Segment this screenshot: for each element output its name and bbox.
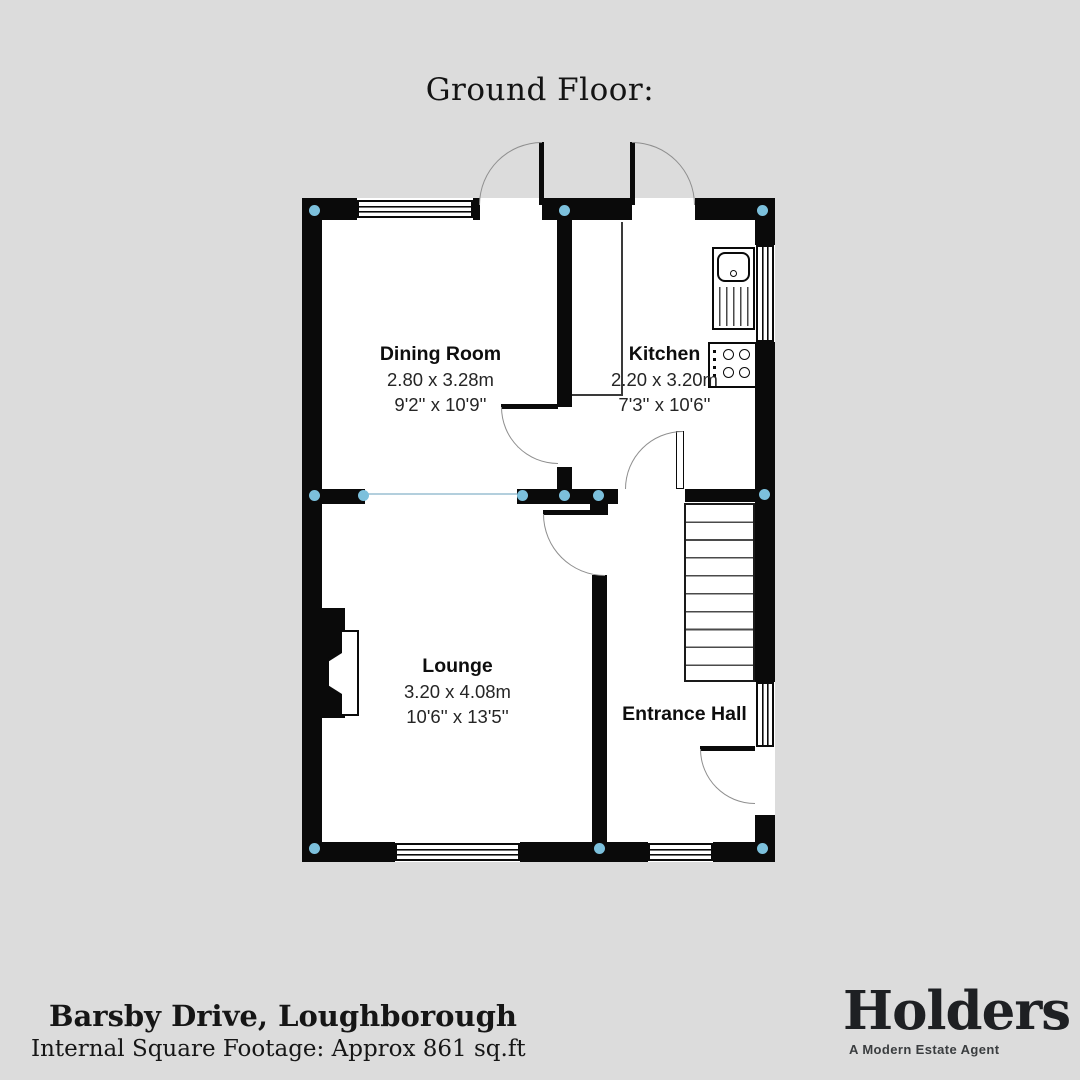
room-name: Kitchen bbox=[562, 341, 767, 367]
window bbox=[648, 843, 713, 861]
junction-dot bbox=[358, 490, 369, 501]
junction-dot bbox=[559, 205, 570, 216]
window bbox=[357, 200, 473, 218]
room-name: Entrance Hall bbox=[582, 701, 787, 727]
junction-dot bbox=[309, 205, 320, 216]
staircase bbox=[684, 503, 755, 682]
room-dim-imperial: 9'2'' x 10'9'' bbox=[338, 392, 543, 417]
room-dim-imperial: 10'6'' x 13'5'' bbox=[355, 704, 560, 729]
door-swing-arc bbox=[543, 514, 605, 576]
room-label-entrance-hall: Entrance Hall bbox=[582, 701, 787, 727]
junction-dot bbox=[757, 205, 768, 216]
junction-dot bbox=[309, 490, 320, 501]
door-swing-arc bbox=[632, 142, 695, 205]
door-swing-arc bbox=[625, 431, 683, 489]
sink-drain bbox=[730, 270, 737, 277]
wall-segment bbox=[302, 198, 322, 862]
door-swing-arc bbox=[700, 749, 755, 804]
room-label-lounge: Lounge 3.20 x 4.08m 10'6'' x 13'5'' bbox=[355, 653, 560, 729]
agency-logo: Holders A Modern Estate Agent bbox=[843, 983, 1070, 1057]
square-footage: Internal Square Footage: Approx 861 sq.f… bbox=[31, 1034, 526, 1064]
junction-dot bbox=[757, 843, 768, 854]
floor-plan: Dining Room 2.80 x 3.28m 9'2'' x 10'9'' … bbox=[302, 198, 775, 862]
junction-dot bbox=[594, 843, 605, 854]
junction-dot bbox=[559, 490, 570, 501]
floorplan-page: Ground Floor: bbox=[0, 0, 1080, 1080]
room-dim-metric: 2.20 x 3.20m bbox=[562, 367, 767, 392]
sink-bowl bbox=[717, 252, 750, 282]
property-address: Barsby Drive, Loughborough bbox=[31, 998, 526, 1034]
logo-brand-text: Holders bbox=[843, 983, 1070, 1039]
wall-segment bbox=[520, 842, 648, 862]
sink-drainer-lines bbox=[719, 287, 750, 326]
window bbox=[756, 245, 774, 342]
junction-dot bbox=[517, 490, 528, 501]
door-swing-arc bbox=[479, 142, 542, 205]
room-dim-imperial: 7'3'' x 10'6'' bbox=[562, 392, 767, 417]
room-name: Dining Room bbox=[338, 341, 543, 367]
junction-dot bbox=[309, 843, 320, 854]
page-title: Ground Floor: bbox=[0, 72, 1080, 108]
room-label-dining: Dining Room 2.80 x 3.28m 9'2'' x 10'9'' bbox=[338, 341, 543, 417]
room-dim-metric: 2.80 x 3.28m bbox=[338, 367, 543, 392]
room-label-kitchen: Kitchen 2.20 x 3.20m 7'3'' x 10'6'' bbox=[562, 341, 767, 417]
junction-dot bbox=[593, 490, 604, 501]
wall-segment bbox=[557, 467, 572, 489]
wall-segment bbox=[542, 198, 632, 220]
footer: Barsby Drive, Loughborough Internal Squa… bbox=[31, 998, 526, 1064]
open-plan-divider-line bbox=[365, 493, 517, 495]
room-dim-metric: 3.20 x 4.08m bbox=[355, 679, 560, 704]
logo-tagline: A Modern Estate Agent bbox=[849, 1042, 1070, 1057]
junction-dot bbox=[759, 489, 770, 500]
room-name: Lounge bbox=[355, 653, 560, 679]
window bbox=[395, 843, 520, 861]
kitchen-sink-icon bbox=[712, 247, 755, 330]
